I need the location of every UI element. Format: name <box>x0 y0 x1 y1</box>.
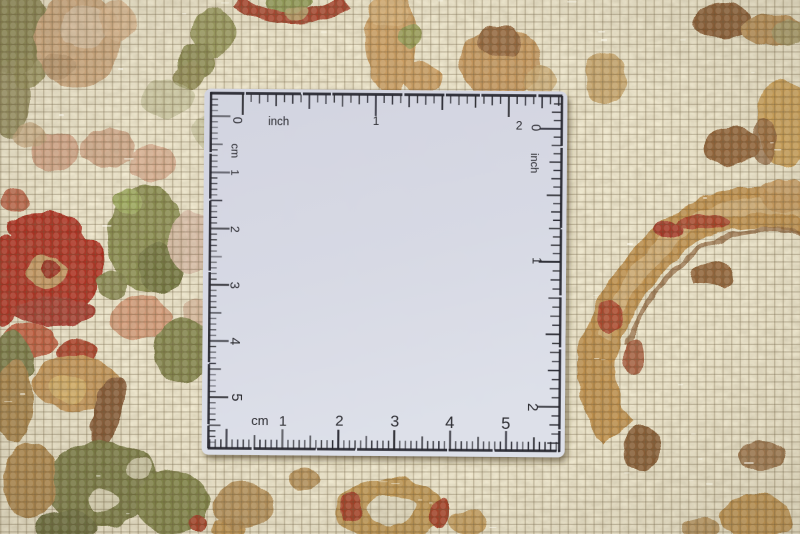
svg-text:4: 4 <box>227 337 243 345</box>
svg-text:0: 0 <box>230 117 244 124</box>
svg-text:3: 3 <box>227 282 242 289</box>
svg-text:5: 5 <box>228 393 244 401</box>
svg-text:1: 1 <box>279 413 287 429</box>
svg-text:1: 1 <box>373 116 380 128</box>
svg-text:5: 5 <box>501 415 510 433</box>
svg-text:2: 2 <box>524 403 541 411</box>
svg-text:1: 1 <box>530 257 544 264</box>
svg-text:3: 3 <box>390 414 399 431</box>
svg-text:inch: inch <box>528 153 540 173</box>
svg-text:cm: cm <box>228 143 240 158</box>
svg-text:cm: cm <box>251 413 268 428</box>
svg-text:2: 2 <box>516 119 523 133</box>
svg-text:1: 1 <box>228 169 240 175</box>
svg-text:0: 0 <box>528 124 542 131</box>
svg-text:2: 2 <box>335 413 343 430</box>
svg-text:inch: inch <box>268 116 289 128</box>
svg-text:2: 2 <box>228 226 242 233</box>
svg-text:4: 4 <box>445 414 454 432</box>
